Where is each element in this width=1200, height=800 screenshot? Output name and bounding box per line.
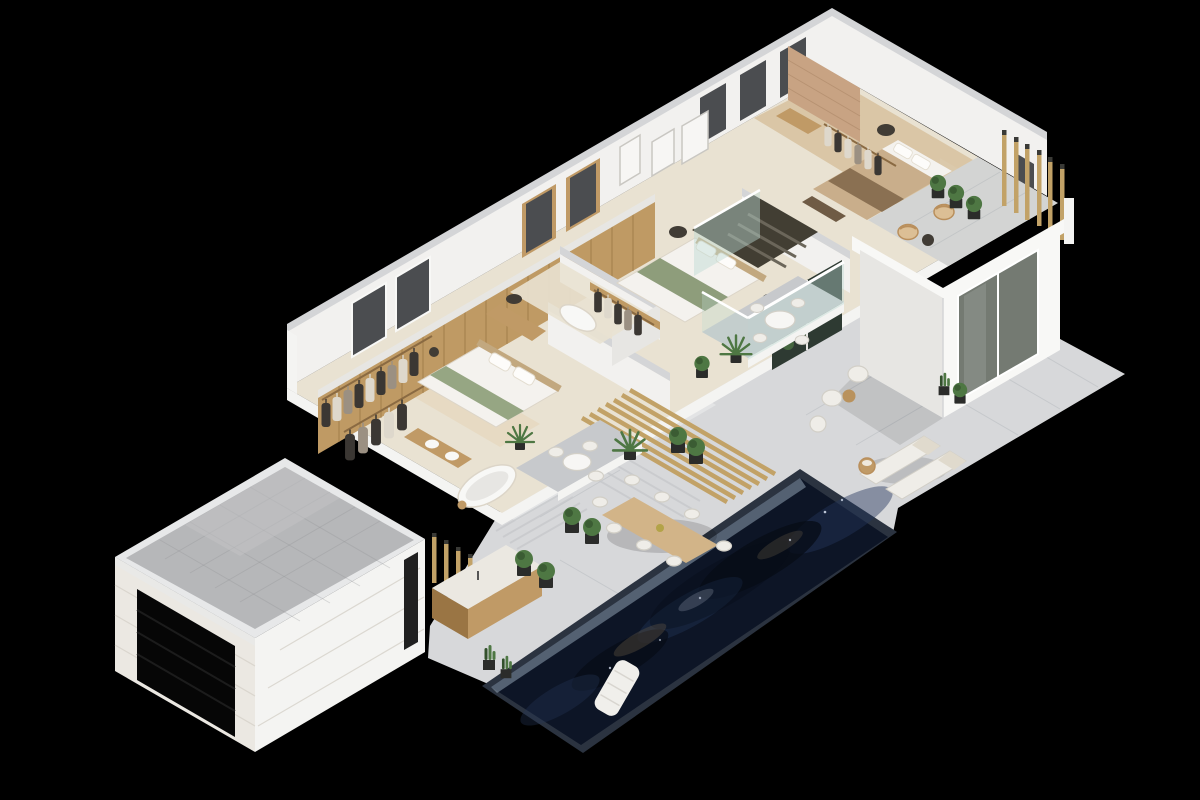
side-table <box>429 347 439 357</box>
planter <box>669 427 687 453</box>
planter <box>930 175 946 198</box>
planter <box>515 550 533 576</box>
garage-side-door <box>404 552 418 650</box>
chair <box>753 334 767 343</box>
stool <box>877 124 895 136</box>
coffee-table <box>843 390 856 403</box>
dining-chair <box>685 509 700 519</box>
planter <box>583 518 601 544</box>
balcony-table <box>765 311 795 329</box>
armchair <box>848 366 868 382</box>
planter <box>563 507 581 533</box>
dining-chair <box>607 523 622 533</box>
pouf <box>810 416 826 432</box>
isometric-villa-render <box>0 0 1200 800</box>
dining-chair <box>625 475 640 485</box>
round-table <box>563 454 591 471</box>
dining-chair <box>667 556 682 566</box>
dining-chair <box>655 492 670 502</box>
screenshot-root <box>0 0 1200 800</box>
dining-chair <box>637 540 652 550</box>
dining-chair <box>717 541 732 551</box>
planter <box>953 383 967 404</box>
planter <box>966 196 982 219</box>
chair <box>549 447 564 457</box>
armchair <box>822 390 842 406</box>
planter <box>537 562 555 588</box>
side-table <box>922 234 934 246</box>
accent-chair <box>669 226 687 238</box>
planter <box>687 438 705 464</box>
stool <box>458 501 467 510</box>
chair <box>791 299 805 308</box>
chair <box>750 304 764 313</box>
desk-chair <box>506 294 522 304</box>
bowl <box>656 524 664 532</box>
dining-chair <box>593 497 608 507</box>
planter <box>948 185 964 208</box>
wicker-chair <box>898 225 918 240</box>
planter <box>694 356 709 378</box>
chair <box>589 471 604 481</box>
chair <box>583 441 598 451</box>
chair <box>795 336 809 345</box>
